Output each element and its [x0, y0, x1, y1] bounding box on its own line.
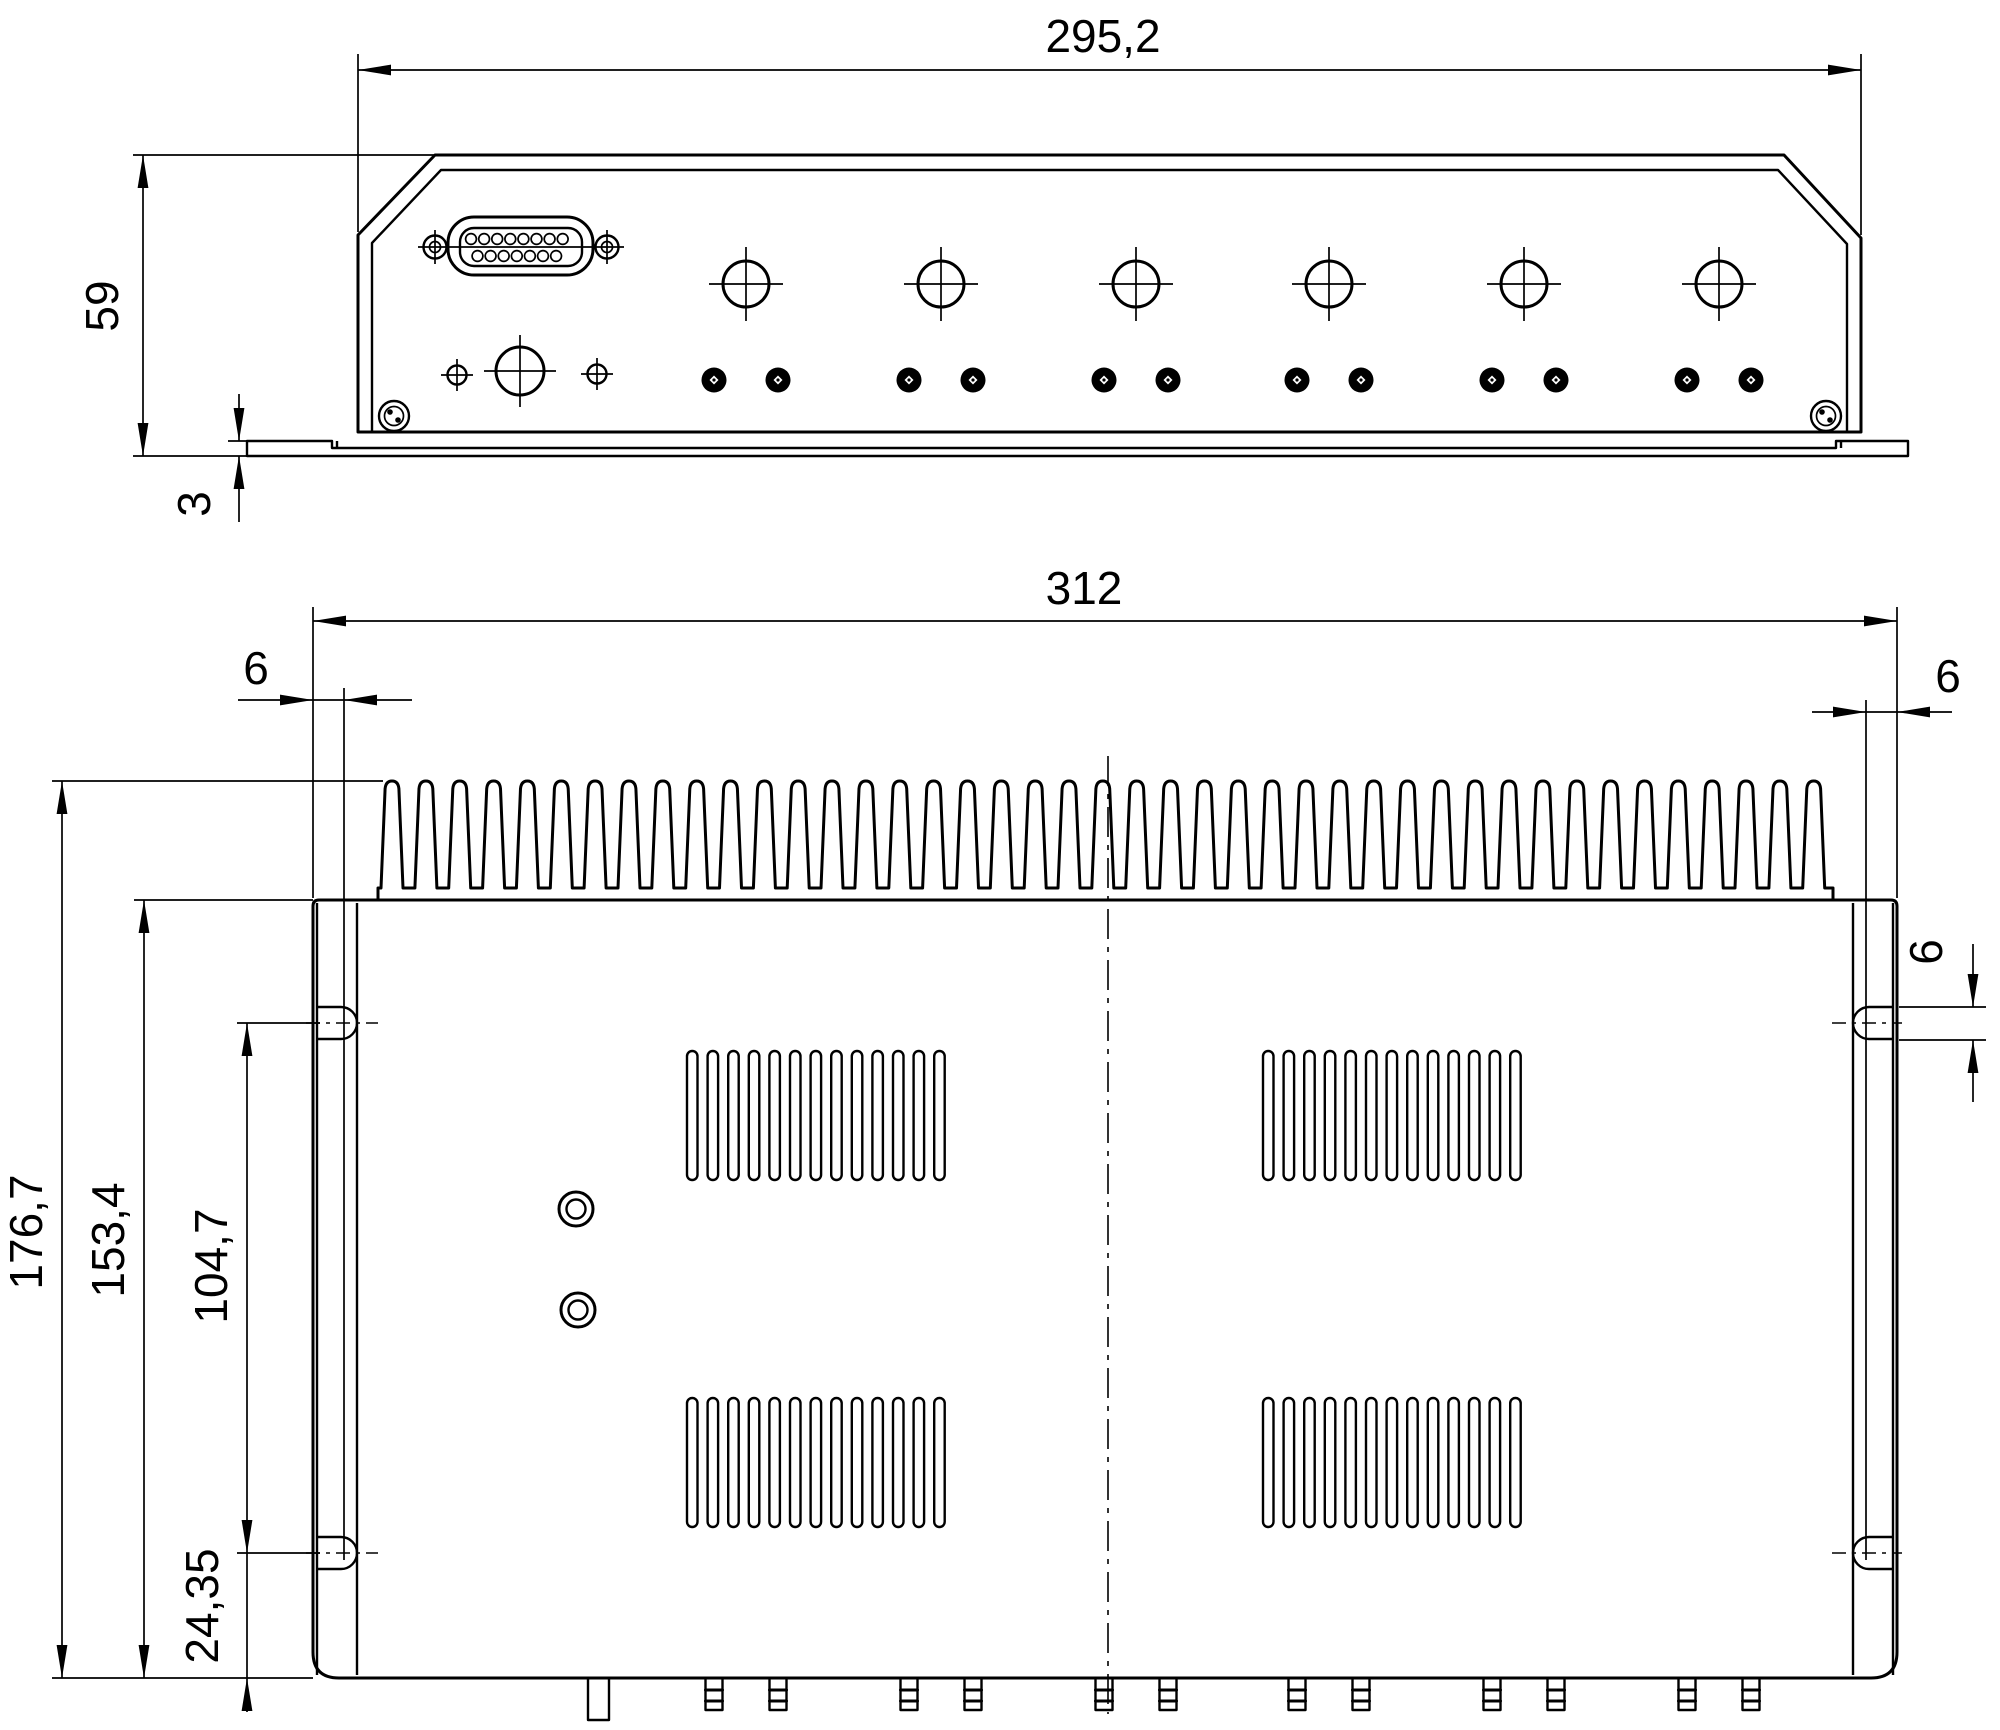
dim-overall-depth-label: 176,7 — [0, 1174, 52, 1289]
vent-slot — [1510, 1398, 1521, 1527]
dim-hole-spacing: 104,7 — [185, 1023, 320, 1553]
dim-slot-hole-width: 6 — [1899, 939, 1986, 1102]
dsub-pin — [531, 234, 542, 245]
dim-hole-offset-bottom: 24,35 — [176, 1548, 247, 1712]
vent-slot — [1428, 1398, 1439, 1527]
vent-slot — [1387, 1051, 1398, 1180]
dsub-connector — [418, 217, 624, 275]
bnc-connector — [1487, 247, 1561, 321]
corner-screw-left — [379, 401, 409, 431]
vent-slot — [893, 1398, 904, 1527]
vent-slot — [1345, 1398, 1356, 1527]
bnc-connector — [1292, 247, 1366, 321]
coax-jack — [1156, 368, 1181, 393]
dim-slot-offset-right: 6 — [1812, 650, 1961, 1560]
vent-slot — [769, 1398, 780, 1527]
vent-slot — [728, 1398, 739, 1527]
vent-slot — [687, 1051, 698, 1180]
dsub-pin — [551, 251, 562, 262]
dsub-pin — [544, 234, 555, 245]
vent-slot — [1469, 1398, 1480, 1527]
front-flange — [247, 441, 1908, 456]
rear-stub — [770, 1678, 787, 1710]
top-view: 312 6 6 6 1 — [0, 562, 1986, 1720]
rear-stub — [1743, 1678, 1760, 1710]
rear-stub — [965, 1678, 982, 1710]
dsub-pin — [479, 234, 490, 245]
dim-slot-hole-width-label: 6 — [1900, 939, 1952, 965]
vent-slot — [1387, 1398, 1398, 1527]
coax-jack — [1092, 368, 1117, 393]
coax-jack — [1675, 368, 1700, 393]
rear-stub — [901, 1678, 918, 1710]
dim-front-width: 295,2 — [358, 10, 1861, 235]
drawing-svg: 295,2 59 3 — [0, 0, 2000, 1730]
dim-hole-spacing-label: 104,7 — [185, 1208, 237, 1323]
coax-jack — [897, 368, 922, 393]
vent-slot-group — [687, 1398, 945, 1527]
vent-slot — [687, 1398, 698, 1527]
bnc-connector — [904, 247, 978, 321]
bnc-connector — [709, 247, 783, 321]
rear-stub — [1289, 1678, 1306, 1710]
vent-slot — [1490, 1398, 1501, 1527]
coax-jack — [766, 368, 791, 393]
coax-jack — [1349, 368, 1374, 393]
screw-boss-lower — [561, 1293, 595, 1327]
vent-slot-groups — [687, 1051, 1521, 1527]
rear-stub — [1160, 1678, 1177, 1710]
coax-jack — [961, 368, 986, 393]
front-view: 295,2 59 3 — [76, 10, 1908, 522]
dim-slot-offset-left: 6 — [238, 642, 412, 1560]
dim-front-width-label: 295,2 — [1045, 10, 1160, 62]
dim-flange-thickness-label: 3 — [168, 491, 220, 517]
corner-screw-right — [1811, 401, 1841, 431]
rear-stub — [1484, 1678, 1501, 1710]
vent-slot — [872, 1051, 883, 1180]
vent-slot-group — [687, 1051, 945, 1180]
vent-slot-group — [1263, 1398, 1521, 1527]
rear-stub — [1096, 1678, 1113, 1710]
vent-slot — [893, 1051, 904, 1180]
vent-slot — [934, 1398, 945, 1527]
dsub-pin — [466, 234, 477, 245]
trim-hole-small-right — [581, 358, 613, 390]
vent-slot — [749, 1051, 760, 1180]
vent-slot-group — [1263, 1051, 1521, 1180]
vent-slot — [749, 1398, 760, 1527]
vent-slot — [1407, 1398, 1418, 1527]
vent-slot — [1510, 1051, 1521, 1180]
vent-slot — [1345, 1051, 1356, 1180]
dim-body-depth-label: 153,4 — [82, 1182, 134, 1297]
vent-slot — [1448, 1398, 1459, 1527]
trim-hole-small-left — [441, 359, 473, 391]
rear-stub — [1353, 1678, 1370, 1710]
vent-slot — [1284, 1398, 1295, 1527]
vent-slot — [1263, 1051, 1274, 1180]
dsub-pin — [498, 251, 509, 262]
coax-jack — [1739, 368, 1764, 393]
screw-boss-upper — [559, 1192, 593, 1226]
rear-stub — [706, 1678, 723, 1710]
vent-slot — [1407, 1051, 1418, 1180]
dsub-pin — [511, 251, 522, 262]
coax-jack — [1544, 368, 1569, 393]
vent-slot — [934, 1051, 945, 1180]
vent-slot — [811, 1051, 822, 1180]
dsub-pin — [525, 251, 536, 262]
vent-slot — [708, 1398, 719, 1527]
vent-slot — [811, 1398, 822, 1527]
vent-slot — [769, 1051, 780, 1180]
vent-slot — [852, 1398, 863, 1527]
heatsink-fins — [378, 781, 1833, 900]
trim-hole-medium — [484, 335, 556, 407]
dsub-pin — [557, 234, 568, 245]
coax-jack — [1480, 368, 1505, 393]
rear-stub — [1548, 1678, 1565, 1710]
bnc-connector — [1682, 247, 1756, 321]
dim-hole-offset-bottom-label: 24,35 — [176, 1548, 228, 1663]
dim-front-height-label: 59 — [76, 280, 128, 331]
vent-slot — [1366, 1051, 1377, 1180]
dsub-pin — [485, 251, 496, 262]
heatsink-fins-profile — [378, 781, 1833, 900]
coax-jack — [1285, 368, 1310, 393]
front-enclosure-inner-wall — [372, 170, 1847, 432]
coax-jack — [702, 368, 727, 393]
dim-slot-offset-right-label: 6 — [1935, 650, 1961, 702]
vent-slot — [914, 1398, 925, 1527]
dsub-pin — [472, 251, 483, 262]
top-body-outline — [313, 900, 1897, 1678]
vent-slot — [1284, 1051, 1295, 1180]
vent-slot — [790, 1398, 801, 1527]
vent-slot — [790, 1051, 801, 1180]
dsub-pin — [518, 234, 529, 245]
vent-slot — [1448, 1051, 1459, 1180]
vent-slot — [1304, 1398, 1315, 1527]
dsub-pin — [505, 234, 516, 245]
front-jacks — [702, 247, 1764, 393]
dim-flange-thickness: 3 — [168, 394, 316, 522]
vent-slot — [872, 1398, 883, 1527]
trim-holes — [441, 335, 613, 407]
rear-stub-plain — [588, 1678, 609, 1720]
vent-slot — [728, 1051, 739, 1180]
vent-slot — [1428, 1051, 1439, 1180]
rear-stub — [1679, 1678, 1696, 1710]
vent-slot — [1325, 1051, 1336, 1180]
vent-slot — [914, 1051, 925, 1180]
bnc-connector — [1099, 247, 1173, 321]
vent-slot — [708, 1051, 719, 1180]
vent-slot — [1304, 1051, 1315, 1180]
vent-slot — [852, 1051, 863, 1180]
vent-slot — [1325, 1398, 1336, 1527]
vent-slot — [1263, 1398, 1274, 1527]
dsub-pin — [538, 251, 549, 262]
vent-slot — [831, 1051, 842, 1180]
vent-slot — [1490, 1051, 1501, 1180]
vent-slot — [1469, 1051, 1480, 1180]
dsub-pin — [492, 234, 503, 245]
technical-drawing-sheet: 295,2 59 3 — [0, 0, 2000, 1730]
vent-slot — [831, 1398, 842, 1527]
dim-top-width-label: 312 — [1046, 562, 1123, 614]
dim-slot-offset-left-label: 6 — [243, 642, 269, 694]
vent-slot — [1366, 1398, 1377, 1527]
rear-connector-stubs — [706, 1678, 1760, 1710]
